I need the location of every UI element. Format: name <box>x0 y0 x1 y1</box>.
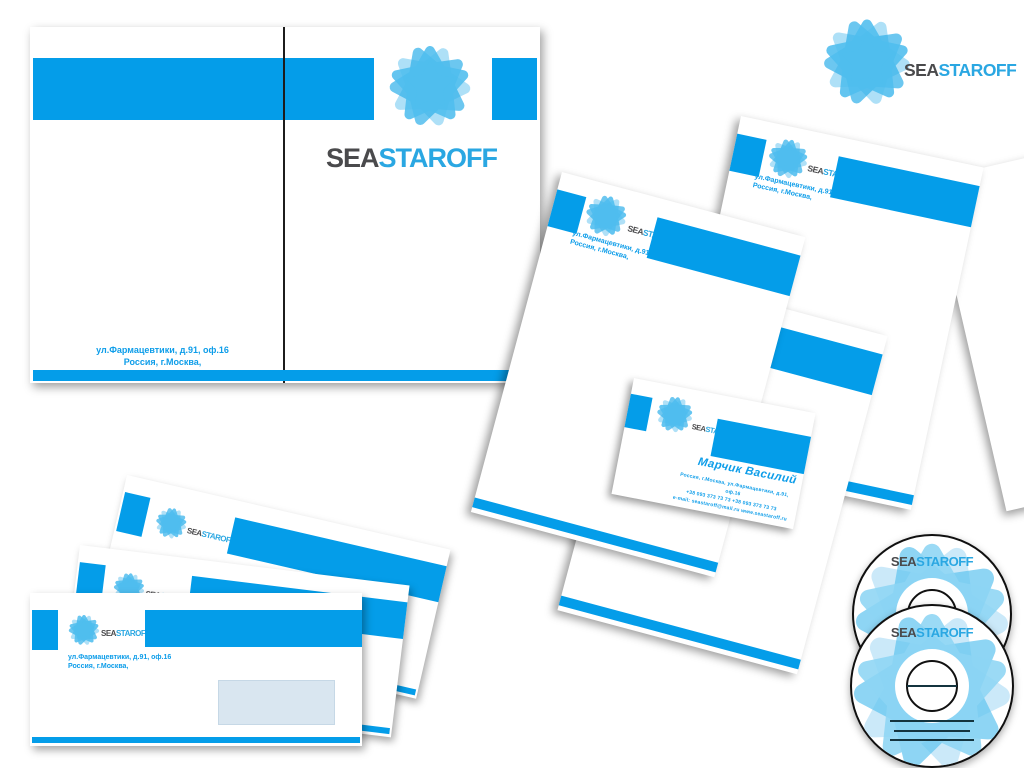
presentation-folder: SEASTAROFF ул.Фармацевтики, д.91, оф.16 … <box>30 27 540 383</box>
brand-name-staroff: STAROFF <box>938 60 1016 80</box>
brand-name-staroff: STAROFF <box>916 625 973 640</box>
letterhead-band <box>830 156 980 227</box>
seastar-logo-icon <box>816 10 918 114</box>
envelope-logotype: SEASTAROFF <box>101 629 150 638</box>
envelope-front: SEASTAROFF ул.Фармацевтики, д.91, оф.16 … <box>30 593 362 746</box>
brand-name-staroff: STAROFF <box>916 554 973 569</box>
folder-band-right <box>492 58 537 120</box>
folder-band-left <box>33 58 374 120</box>
address-line-1: ул.Фармацевтики, д.91, оф.16 <box>68 653 171 662</box>
seastar-logo-icon <box>382 37 478 135</box>
cd-logotype: SEASTAROFF <box>854 554 1010 569</box>
brand-logo-lockup: SEASTAROFF <box>812 8 1022 118</box>
envelope-address-window <box>218 680 335 725</box>
envelope-bottom-strip <box>32 737 360 743</box>
envelope-corner-square <box>116 492 150 537</box>
seastar-logo-icon <box>149 501 193 546</box>
card-corner-square <box>624 394 652 432</box>
brand-name-sea: SEA <box>101 629 116 638</box>
envelope-logotype: SEASTAROFF <box>186 526 235 546</box>
envelope-address: ул.Фармацевтики, д.91, оф.16 Россия, г.М… <box>68 653 171 671</box>
letterhead-band <box>647 217 801 296</box>
seastar-logo-icon <box>66 611 102 649</box>
cd-hole-line <box>907 685 957 687</box>
folder-bottom-strip <box>33 370 537 381</box>
brand-logotype: SEASTAROFF <box>904 60 1016 81</box>
brand-name-sea: SEA <box>326 143 379 173</box>
brand-name-sea: SEA <box>891 554 916 569</box>
cd-logotype: SEASTAROFF <box>852 625 1012 640</box>
letterhead-bottom-strip <box>559 596 801 670</box>
envelope-corner-square <box>32 610 58 650</box>
cd-signature-line <box>894 730 970 732</box>
brand-name-staroff: STAROFF <box>379 143 497 173</box>
cd-signature-line <box>890 720 974 722</box>
address-line-2: Россия, г.Москва, <box>70 357 255 369</box>
brand-name-sea: SEA <box>904 60 938 80</box>
cd-disc-front: SEASTAROFF <box>850 604 1014 768</box>
folder-address: ул.Фармацевтики, д.91, оф.16 Россия, г.М… <box>70 345 255 368</box>
brand-name-sea: SEA <box>891 625 916 640</box>
cd-signature-line <box>890 739 974 741</box>
address-line-2: Россия, г.Москва, <box>68 662 171 671</box>
folder-fold-line <box>283 27 285 383</box>
stationery-mockup-canvas: SEASTAROFF ул.Фармацевтики, д.91, оф.16 … <box>0 0 1024 768</box>
seastar-logo-icon <box>650 389 700 440</box>
folder-logotype: SEASTAROFF <box>283 143 540 174</box>
address-line-1: ул.Фармацевтики, д.91, оф.16 <box>70 345 255 357</box>
envelope-band <box>145 610 362 647</box>
